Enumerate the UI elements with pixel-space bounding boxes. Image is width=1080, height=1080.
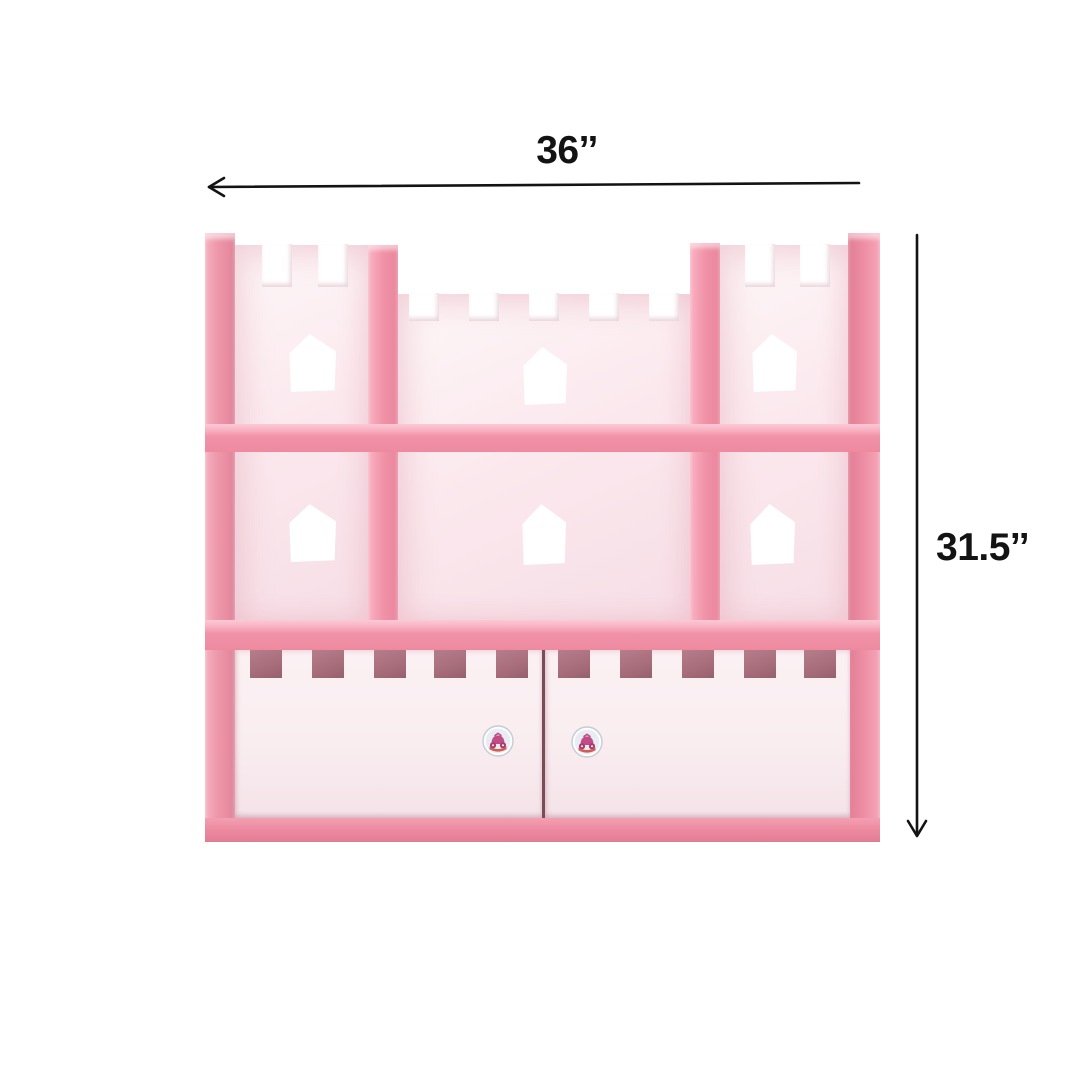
right-frame-board: [848, 233, 880, 842]
drawer-notch: [312, 650, 344, 678]
crenellation-notch: [800, 244, 830, 287]
drawer-gap-line: [542, 650, 545, 818]
shelf-board: [205, 424, 880, 452]
drawer-knob-carriage-icon: [482, 725, 514, 757]
drawer-notch: [434, 650, 466, 678]
crenellation-notch: [469, 293, 499, 321]
drawer-notch: [374, 650, 406, 678]
shelf-board: [205, 620, 880, 650]
crenellation-notch: [318, 244, 348, 287]
castle-bookshelf: [0, 0, 1080, 1080]
crenellation-notch: [589, 293, 619, 321]
crenellation-notch: [649, 293, 679, 321]
drawer-notch: [558, 650, 590, 678]
drawer-notch: [620, 650, 652, 678]
crenellation-notch: [409, 293, 439, 321]
drawer-notch: [804, 650, 836, 678]
drawer-notch: [250, 650, 282, 678]
drawer-notch: [744, 650, 776, 678]
crenellation-notch: [745, 244, 775, 287]
crenellation-notch: [262, 244, 292, 287]
drawer-knob-carriage-icon: [571, 726, 603, 758]
drawer-notch: [682, 650, 714, 678]
left-frame-board: [205, 233, 235, 842]
middle-panel: [398, 294, 690, 622]
crenellation-notch: [529, 293, 559, 321]
base-board: [205, 818, 880, 842]
product-dimension-diagram: 36’’ 31.5’’: [0, 0, 1080, 1080]
drawer-notch: [496, 650, 528, 678]
